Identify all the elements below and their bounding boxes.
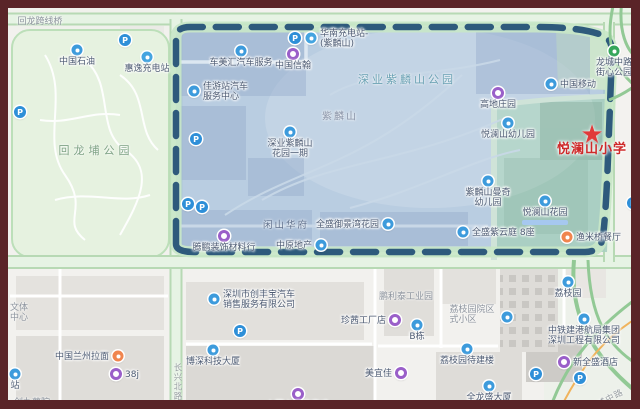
poi-label-tengpeng-decoration-materials: 腾鹏装饰材料行 — [192, 243, 255, 253]
poi-label-quansheng-ziyunting-8: 全盛紫云庭 8座 — [472, 228, 535, 238]
poi-label-chemeihui-auto-service: 车美汇汽车服务 — [209, 58, 272, 68]
poi-label-gaodi-manor: 高地庄园 — [480, 100, 516, 110]
purple-poi-icon — [389, 314, 401, 326]
purple-poi-icon — [218, 230, 230, 242]
map-canvas[interactable]: 中国石油惠逸充电站PP车美汇汽车服务P华南充电站-(紫麟山)中国信翰佳游站汽车服… — [8, 8, 631, 400]
label-penglitai-industrial-park: 鹏利泰工业园 — [379, 292, 433, 302]
poi-label-meiyijia: 美宜佳 — [365, 369, 392, 379]
poi-label-station: 站 — [10, 381, 19, 391]
blue-poi-icon — [484, 381, 495, 392]
poi-label-quanlongsheng-tower: 全龙盛大厦 — [466, 393, 511, 400]
poi-label-zhongtiejian-port-group: 中铁建港航局集团深圳工程有限公司 — [548, 326, 620, 346]
label-changxing-north-road: 长兴北路 — [171, 363, 183, 400]
parking-icon: P — [182, 198, 194, 210]
poi-label-quansheng-yujingwan-garden: 全盛御景湾花园 — [316, 220, 379, 230]
poi-label-jiayouzhan-auto-center: 佳游站汽车服务中心 — [203, 82, 248, 102]
blue-poi-icon — [458, 227, 469, 238]
label-xianshan-huafu: 闲山华府 — [263, 217, 309, 231]
charging-poi-icon — [306, 33, 317, 44]
poi-label-sinopec: 中国石油 — [59, 57, 95, 67]
blue-poi-icon — [10, 369, 21, 380]
poi-label-huiyi-charging-station: 惠逸充电站 — [124, 64, 169, 74]
label-longcheng-middle-road: 龙城中路 — [586, 386, 625, 400]
blue-poi-icon — [503, 118, 514, 129]
purple-poi-icon — [558, 356, 570, 368]
blue-poi-icon — [462, 344, 473, 355]
charging-poi-icon — [142, 52, 153, 63]
poi-label-huanan-charging-station: 华南充电站-(紫麟山) — [320, 29, 368, 49]
poi-label-boshen-tech-tower: 博深科技大厦 — [186, 357, 240, 367]
poi-label-yuelanshan-primary-school: 悦澜山小学 — [557, 142, 627, 157]
purple-poi-icon — [110, 368, 122, 380]
poi-label-zhongguo-xinhan: 中国信翰 — [275, 61, 311, 71]
orange-poi-icon — [562, 232, 573, 243]
green-poi-icon — [609, 46, 620, 57]
blue-poi-icon — [383, 219, 394, 230]
purple-poi-icon — [287, 48, 299, 60]
blue-poi-icon — [412, 320, 423, 331]
blue-poi-icon — [540, 196, 551, 207]
parking-icon: P — [289, 32, 301, 44]
blue-poi-icon — [285, 127, 296, 138]
blue-poi-icon — [209, 294, 220, 305]
parking-icon: P — [627, 197, 631, 209]
label-huilongpu-park: 回龙埔公园 — [59, 142, 134, 158]
map-screenshot-frame: 中国石油惠逸充电站PP车美汇汽车服务P华南充电站-(紫麟山)中国信翰佳游站汽车服… — [0, 0, 640, 409]
poi-label-yuelanshan-kindergarten: 悦澜山幼儿园 — [481, 130, 535, 140]
highlighted-building-bar — [522, 220, 568, 225]
purple-poi-icon — [395, 367, 407, 379]
label-zilinshan-hill: 紫麟山 — [322, 108, 358, 123]
parking-icon: P — [190, 133, 202, 145]
parking-icon: P — [234, 325, 246, 337]
poi-label-chuangfengbao-auto-sales: 深圳市创丰宝汽车销售服务有限公司 — [223, 290, 295, 310]
blue-poi-icon — [208, 345, 219, 356]
label-chuangjiu-shuyuan: 创九薯院 — [14, 398, 50, 400]
poi-label-shop-38j: 38j — [125, 370, 139, 380]
orange-poi-icon — [113, 351, 124, 362]
purple-poi-icon — [292, 388, 304, 400]
blue-poi-icon — [502, 312, 513, 323]
poi-label-lizhiyuan-pending-building: 荔枝园待建楼 — [440, 356, 494, 366]
poi-label-shenye-zilinshan-garden-phase1: 深业紫麟山花园一期 — [267, 139, 312, 159]
poi-label-lanzhou-noodles: 中国兰州拉面 — [55, 352, 109, 362]
parking-icon: P — [196, 201, 208, 213]
label-shenye-zilinshan-park: 深业紫麟山公园 — [358, 71, 456, 87]
label-wenti-center: 文体中心 — [10, 303, 28, 323]
label-huilong-flyover: 回龙跨线桥 — [17, 17, 62, 27]
poi-label-zhenqian-factory-store: 珍茜工厂店 — [341, 316, 386, 326]
poi-label-yumiqiao-restaurant: 渔米桥餐厅 — [576, 233, 621, 243]
parking-icon: P — [119, 34, 131, 46]
poi-label-zilinshan-manqi-kindergarten: 紫麟山曼奇幼儿园 — [465, 188, 510, 208]
poi-label-xinquansheng-hotel: 新全盛酒店 — [573, 358, 618, 368]
blue-poi-icon — [236, 46, 247, 57]
poi-label-china-mobile: 中国移动 — [560, 80, 596, 90]
poi-label-yuelanshan-garden: 悦澜山花园 — [522, 208, 568, 225]
poi-layer: 中国石油惠逸充电站PP车美汇汽车服务P华南充电站-(紫麟山)中国信翰佳游站汽车服… — [8, 8, 631, 400]
label-lizhiyuan-compound: 荔枝园院区式小区 — [449, 305, 494, 325]
blue-poi-icon — [189, 86, 200, 97]
blue-poi-icon — [483, 176, 494, 187]
blue-poi-icon — [579, 314, 590, 325]
blue-poi-icon — [546, 79, 557, 90]
poi-label-zhongyuan-realty: 中原地产 — [276, 241, 312, 251]
poi-label-lizhiyuan: 荔枝园 — [554, 289, 581, 299]
poi-label-building-b: B栋 — [409, 332, 424, 342]
blue-poi-icon — [72, 45, 83, 56]
blue-poi-icon — [563, 277, 574, 288]
blue-poi-icon — [316, 240, 327, 251]
parking-icon: P — [530, 368, 542, 380]
poi-label-longcheng-street-park: 龙城中路街心公园 — [596, 58, 631, 78]
parking-icon: P — [14, 106, 26, 118]
purple-poi-icon — [492, 87, 504, 99]
parking-icon: P — [574, 372, 586, 384]
